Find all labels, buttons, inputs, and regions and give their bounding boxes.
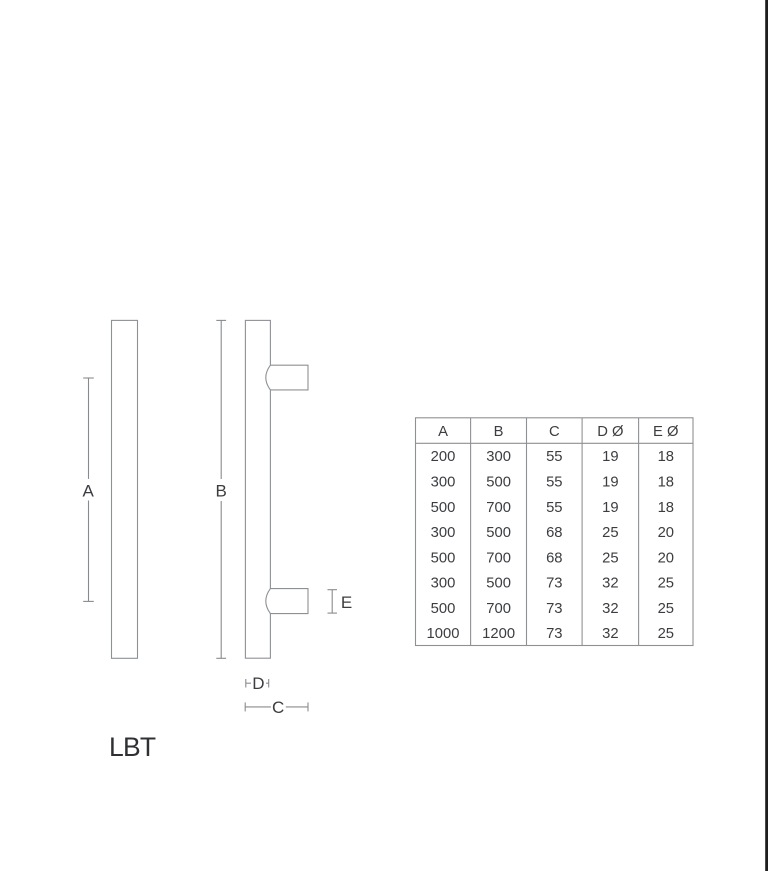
svg-text:1200: 1200: [482, 626, 515, 642]
svg-text:73: 73: [546, 626, 562, 642]
svg-text:700: 700: [486, 500, 511, 516]
svg-text:500: 500: [431, 550, 456, 566]
svg-text:LBT: LBT: [109, 732, 156, 762]
svg-text:32: 32: [602, 601, 618, 617]
svg-text:19: 19: [602, 449, 618, 465]
svg-text:300: 300: [486, 449, 511, 465]
svg-text:32: 32: [602, 626, 618, 642]
svg-text:55: 55: [546, 475, 562, 491]
svg-text:25: 25: [658, 626, 674, 642]
svg-text:A: A: [438, 424, 448, 440]
svg-text:18: 18: [658, 449, 674, 465]
svg-text:68: 68: [546, 525, 562, 541]
svg-text:C: C: [549, 424, 560, 440]
svg-text:19: 19: [602, 475, 618, 491]
svg-text:200: 200: [431, 449, 456, 465]
svg-text:500: 500: [431, 500, 456, 516]
svg-text:D Ø: D Ø: [597, 424, 624, 440]
svg-text:E: E: [341, 593, 352, 612]
svg-text:32: 32: [602, 576, 618, 592]
svg-text:C: C: [272, 698, 284, 717]
svg-text:A: A: [83, 482, 95, 501]
svg-text:D: D: [252, 674, 264, 693]
svg-text:B: B: [216, 482, 227, 501]
svg-text:700: 700: [486, 601, 511, 617]
svg-text:E Ø: E Ø: [653, 424, 679, 440]
svg-text:25: 25: [658, 576, 674, 592]
svg-text:B: B: [494, 424, 504, 440]
svg-text:300: 300: [431, 475, 456, 491]
svg-text:25: 25: [658, 601, 674, 617]
svg-text:73: 73: [546, 601, 562, 617]
svg-text:55: 55: [546, 500, 562, 516]
svg-text:18: 18: [658, 475, 674, 491]
svg-text:19: 19: [602, 500, 618, 516]
svg-text:500: 500: [431, 601, 456, 617]
svg-text:25: 25: [602, 550, 618, 566]
svg-text:1000: 1000: [427, 626, 460, 642]
svg-text:20: 20: [658, 525, 674, 541]
svg-text:73: 73: [546, 576, 562, 592]
svg-text:25: 25: [602, 525, 618, 541]
svg-text:500: 500: [486, 576, 511, 592]
svg-text:500: 500: [486, 525, 511, 541]
svg-text:300: 300: [431, 525, 456, 541]
svg-text:18: 18: [658, 500, 674, 516]
svg-text:68: 68: [546, 550, 562, 566]
svg-text:300: 300: [431, 576, 456, 592]
svg-text:55: 55: [546, 449, 562, 465]
svg-text:20: 20: [658, 550, 674, 566]
svg-text:700: 700: [486, 550, 511, 566]
svg-text:500: 500: [486, 475, 511, 491]
